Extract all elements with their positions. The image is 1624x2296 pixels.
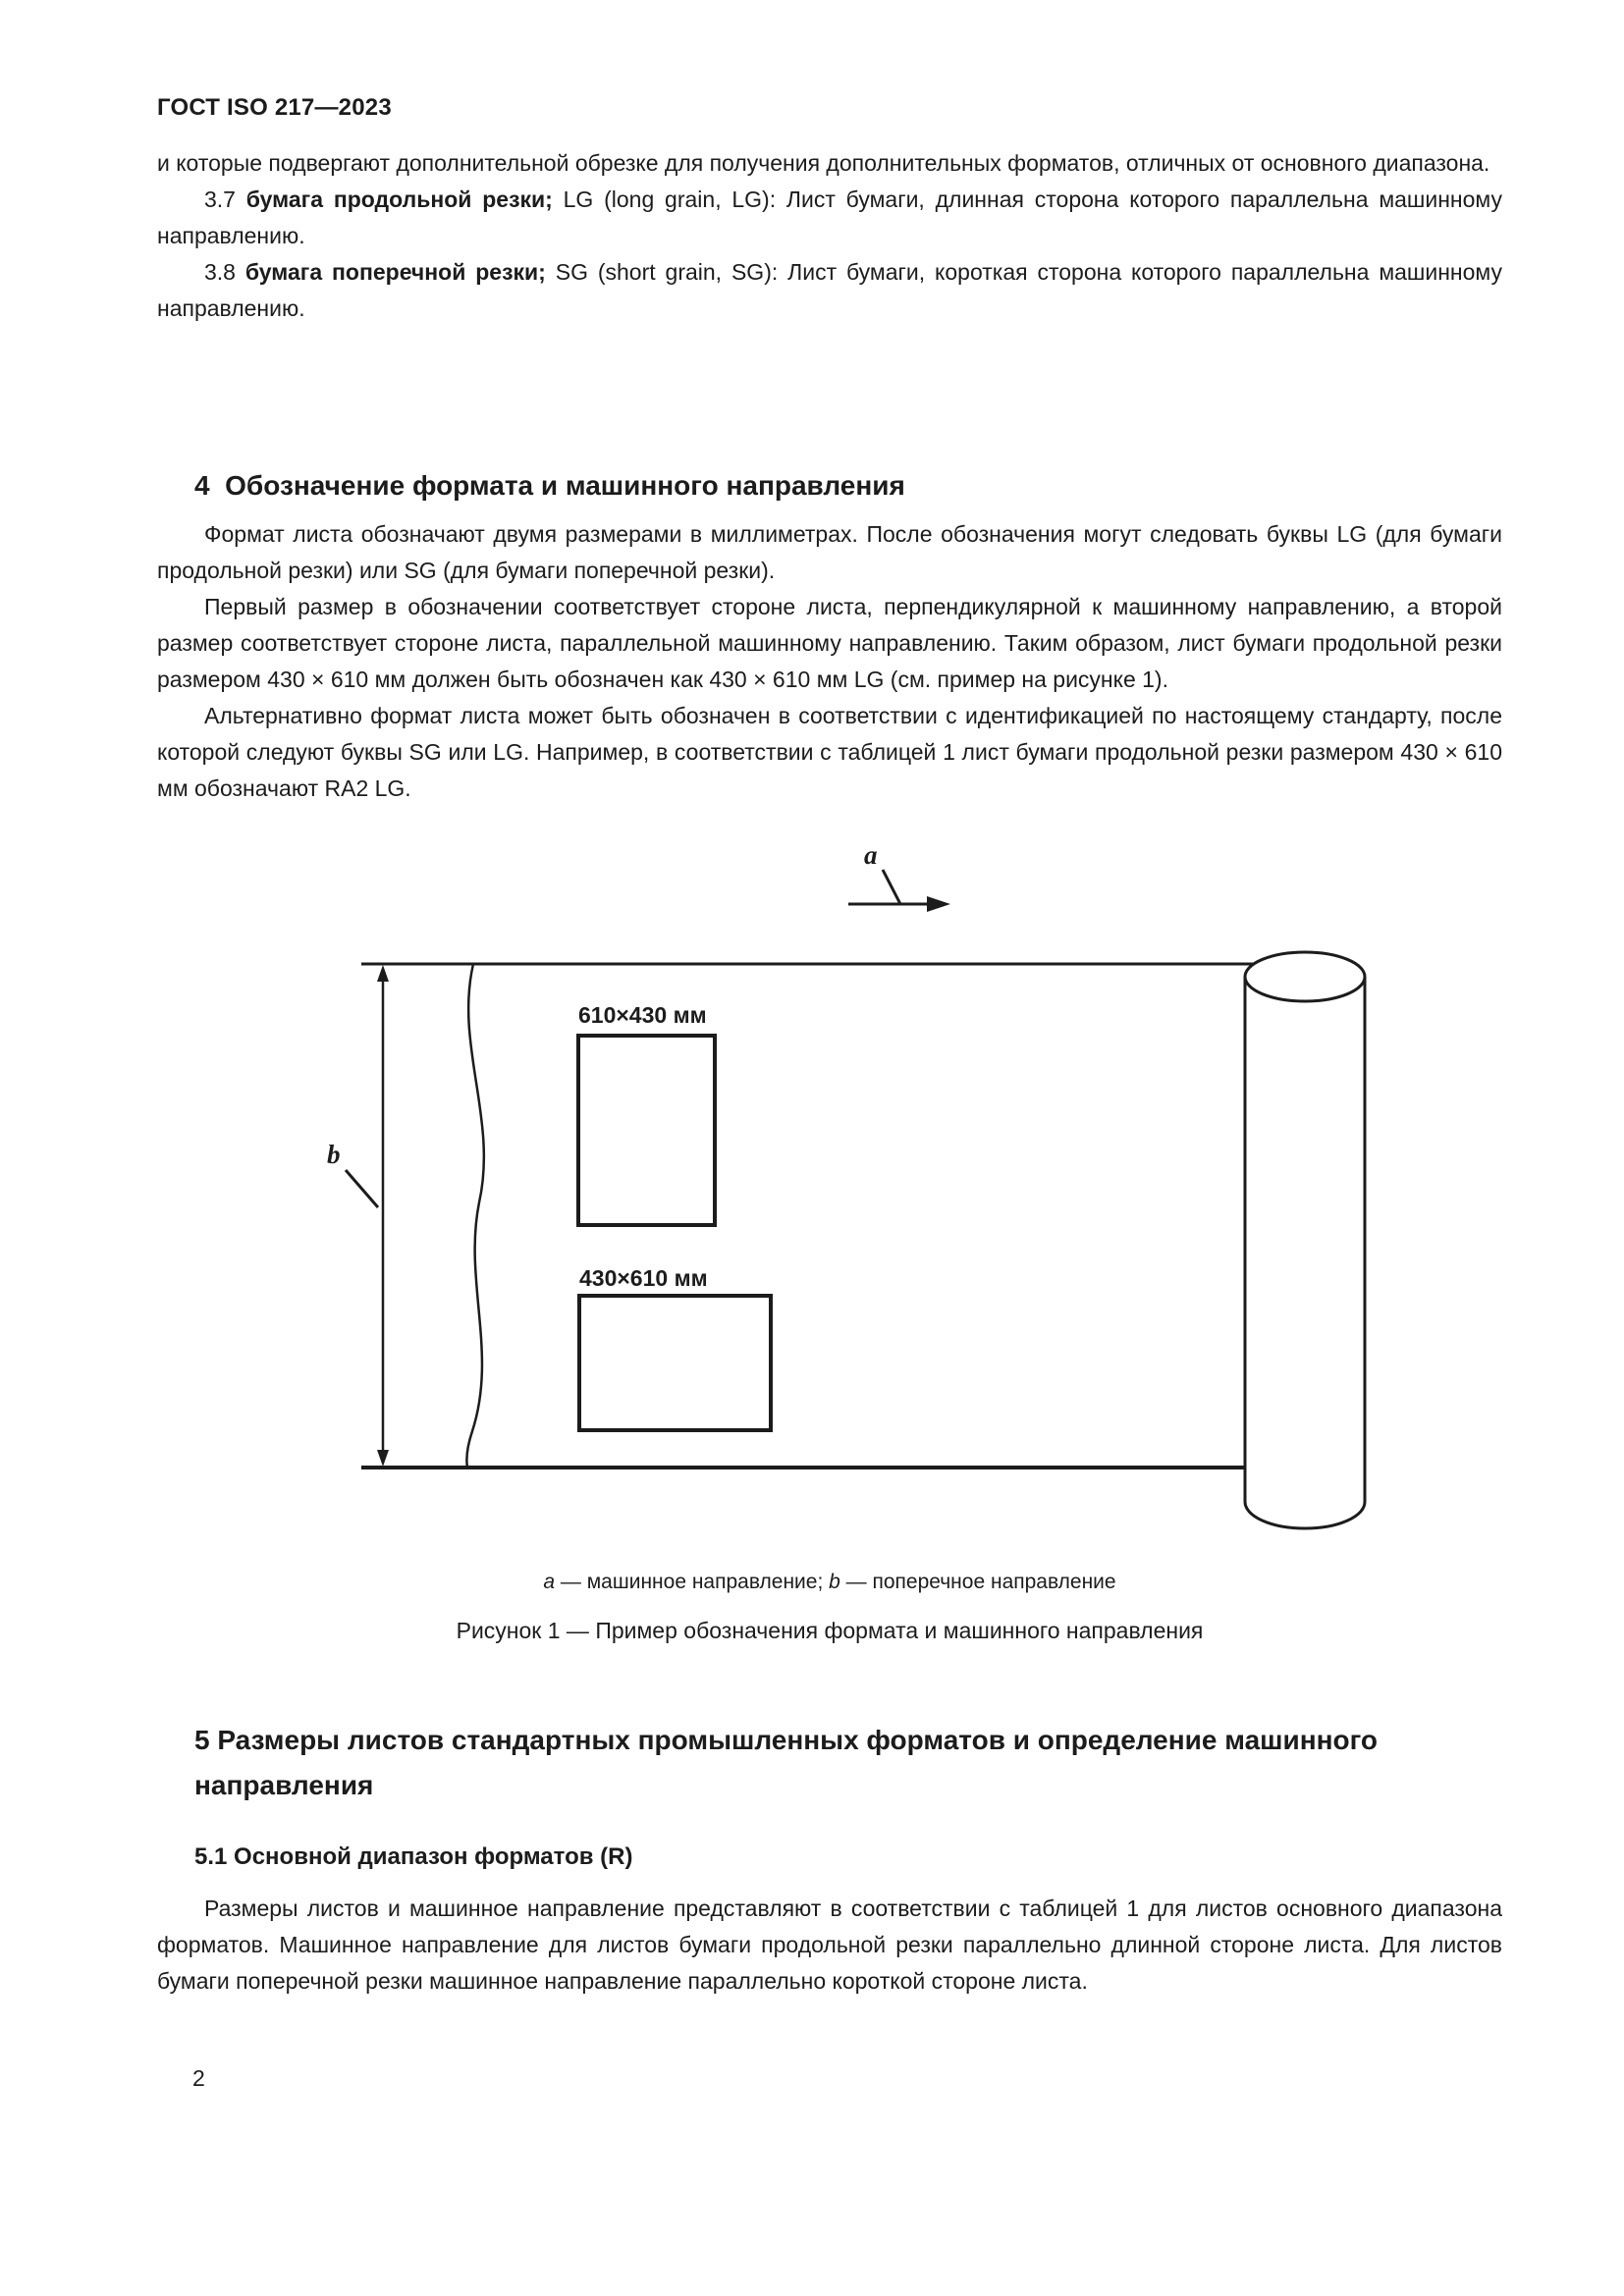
dimension-arrow-bottom [377,1450,389,1467]
paragraph-intro: и которые подвергают дополнительной обре… [157,145,1502,182]
figure-1-diagram: a b 610×430 мм 430×610 мм [295,829,1434,1546]
term-short-grain: бумага поперечной резки; [245,259,546,285]
paragraph-4-3: Альтернативно формат листа может быть об… [157,698,1502,807]
dimension-arrow-top [377,965,389,982]
label-a-leader-line [883,870,900,904]
label-a: a [864,840,878,870]
clause-number: 3.7 [204,187,246,212]
sheet-landscape-430x610: 430×610 мм [579,1265,771,1430]
section-3-text: и которые подвергают дополнительной обре… [157,145,1502,327]
sheet-landscape-rect [579,1296,771,1430]
paper-roll-cylinder [1245,952,1365,1528]
heading-section-5: 5 Размеры листов стандартных промышленны… [194,1718,1441,1808]
figure-caption: Рисунок 1 — Пример обозначения формата и… [157,1618,1502,1644]
section-4-text: Формат листа обозначают двумя размерами … [157,516,1502,807]
document-title: ГОСТ ISO 217—2023 [157,94,392,122]
cross-direction-dimension: b [327,965,389,1467]
paragraph-4-2: Первый размер в обозначении соответствуе… [157,589,1502,698]
paragraph-3-7: 3.7 бумага продольной резки; LG (long gr… [157,182,1502,254]
legend-text-a: — машинное направление; [555,1571,829,1593]
paragraph-4-1: Формат листа обозначают двумя размерами … [157,516,1502,589]
paper-web [361,964,1316,1468]
sheet-portrait-label: 610×430 мм [578,1002,707,1028]
roll-body-mask [1245,977,1365,1502]
heading-section-4: 4 Обозначение формата и машинного направ… [194,463,905,508]
label-b: b [327,1140,341,1169]
heading-section-5-1: 5.1 Основной диапазон форматов (R) [194,1843,632,1871]
clause-number: 3.8 [204,259,245,285]
term-long-grain: бумага продольной резки; [246,187,553,212]
arrow-head [927,896,950,912]
figure-legend: a — машинное направление; b — поперечное… [157,1571,1502,1594]
legend-var-a: a [543,1571,555,1593]
roll-bottom-mask [1245,1502,1365,1528]
sheet-torn-edge-wavy-line [466,964,484,1468]
sheet-portrait-610x430: 610×430 мм [578,1002,715,1225]
page-number: 2 [192,2065,205,2092]
section-5-text: Размеры листов и машинное направление пр… [157,1891,1502,2000]
machine-direction-arrow: a [848,840,950,912]
legend-text-b: — поперечное направление [840,1571,1116,1593]
sheet-landscape-label: 430×610 мм [579,1265,708,1291]
paragraph-3-8: 3.8 бумага поперечной резки; SG (short g… [157,254,1502,327]
legend-var-b: b [829,1571,840,1593]
document-page: ГОСТ ISO 217—2023 и которые подвергают д… [0,0,1624,2296]
sheet-portrait-rect [578,1036,715,1225]
paragraph-5-1: Размеры листов и машинное направление пр… [157,1891,1502,2000]
roll-top-ellipse [1245,952,1365,1001]
label-b-leader-line [346,1170,378,1207]
